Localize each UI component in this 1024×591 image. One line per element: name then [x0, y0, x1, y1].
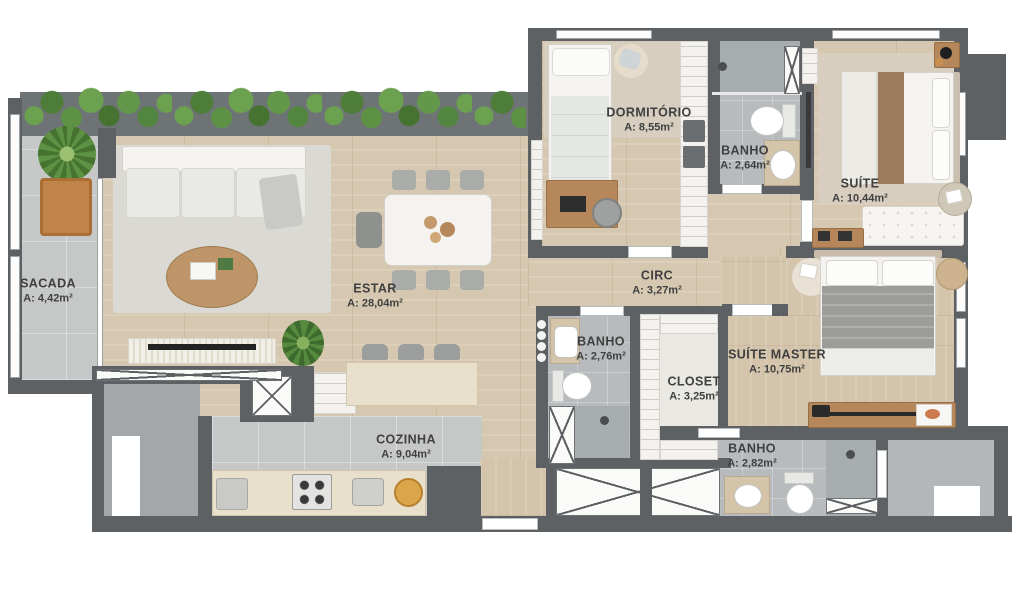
towel-roll — [537, 342, 546, 351]
sliding-door — [97, 178, 103, 382]
shower-glass-panel — [549, 406, 575, 464]
shower-glass-panel — [826, 498, 878, 514]
window — [10, 256, 20, 378]
wall-segment — [528, 246, 628, 258]
wall-segment — [884, 426, 1008, 440]
linen-cabinet — [784, 46, 800, 94]
bath1-door — [722, 184, 762, 194]
label-banho-1: BANHO A: 2,64m² — [720, 143, 770, 172]
balcony-mat — [40, 178, 92, 236]
sofa-cushion — [181, 168, 235, 218]
wall-segment — [994, 436, 1008, 528]
bar-stool — [398, 344, 424, 360]
stove — [292, 474, 332, 510]
toilet-tank — [782, 104, 796, 138]
wall-pillar — [98, 128, 116, 178]
table-bowl — [424, 216, 437, 229]
entry-door — [482, 518, 538, 530]
dining-table — [384, 194, 492, 266]
throw-blanket — [259, 174, 304, 231]
wall-segment — [772, 304, 788, 316]
dining-chair — [460, 270, 484, 290]
toilet-bowl — [750, 106, 784, 136]
pouf — [936, 258, 968, 290]
label-banho-2: BANHO A: 2,76m² — [576, 334, 626, 363]
camera-object — [812, 405, 830, 417]
sink — [770, 150, 796, 180]
bed-pillow — [882, 260, 934, 286]
terrace-door — [877, 450, 887, 498]
bed-sheet-fold — [822, 348, 934, 375]
closet-shelf-left — [640, 314, 660, 460]
service-mat — [112, 436, 140, 516]
floor-plan: SACADA A: 4,42m² ESTAR A: 28,04m² DORMIT… — [0, 0, 1024, 591]
dining-chair — [426, 270, 450, 290]
towel-roll — [537, 353, 546, 362]
dresser-item — [838, 231, 852, 241]
sofa-cushion — [126, 168, 180, 218]
coffee-table-box — [218, 258, 233, 270]
tv-console — [128, 338, 276, 364]
wardrobe — [680, 41, 708, 247]
bar-stool — [362, 344, 388, 360]
label-circ: CIRC A: 3,27m² — [632, 268, 682, 297]
wall-segment — [718, 306, 728, 436]
wall-segment — [546, 458, 556, 518]
kitchen-island — [346, 362, 478, 406]
wardrobe-appliance — [683, 146, 705, 168]
counter-appliance — [216, 478, 248, 510]
plant — [282, 320, 324, 366]
elevator-shaft — [252, 376, 292, 416]
wall-block — [427, 466, 481, 518]
tray-item — [925, 409, 940, 419]
bed-pillow — [826, 260, 878, 286]
window — [10, 114, 20, 250]
planter-plants — [22, 86, 526, 134]
mirror — [806, 92, 811, 168]
kitchen-sink — [352, 478, 384, 506]
label-banho-3: BANHO A: 2,82m² — [727, 441, 777, 470]
bookshelf — [531, 140, 543, 240]
wall-segment — [92, 516, 1012, 532]
table-bowl — [440, 222, 455, 237]
bed-pillow — [932, 130, 950, 180]
window — [956, 318, 966, 368]
towel-shelf — [802, 48, 818, 84]
dining-chair — [426, 170, 450, 190]
wall-segment — [8, 380, 100, 394]
bed-duvet-fold — [842, 72, 878, 184]
coffee-table-book — [190, 262, 216, 280]
bar-stool — [434, 344, 460, 360]
label-suite-master: SUÍTE MASTER A: 10,75m² — [728, 347, 826, 376]
label-estar: ESTAR A: 28,04m² — [347, 281, 403, 310]
wall-segment — [672, 246, 708, 258]
closet-shelf-top — [660, 314, 718, 334]
wall-segment — [630, 306, 640, 466]
bath3-door — [698, 428, 740, 438]
wall-segment — [198, 416, 212, 520]
wall-segment — [640, 426, 888, 440]
bath2-door — [580, 306, 624, 316]
label-sacada: SACADA A: 4,42m² — [20, 276, 76, 305]
bed-pillow — [932, 78, 950, 128]
dining-chair — [392, 170, 416, 190]
lamp-icon — [940, 47, 952, 59]
shower-head-icon — [846, 450, 855, 459]
laptop — [560, 196, 586, 212]
dresser-item — [818, 231, 830, 241]
pizza-dish — [394, 478, 423, 507]
towel-roll — [537, 331, 546, 340]
window — [832, 30, 940, 39]
terrace-mat — [934, 486, 980, 518]
towel-roll — [537, 320, 546, 329]
bed-runner — [874, 72, 904, 184]
label-dormitorio: DORMITÓRIO A: 8,55m² — [606, 105, 691, 134]
wall-segment — [706, 28, 720, 194]
toilet-tank — [784, 472, 814, 484]
shower-head-icon — [718, 62, 727, 71]
paper-on-rug — [799, 263, 818, 280]
shower-head-icon — [600, 416, 609, 425]
low-sideboard — [96, 369, 282, 381]
dining-chair — [460, 170, 484, 190]
label-cozinha: COZINHA A: 9,04m² — [376, 432, 436, 461]
wall-segment — [92, 380, 104, 530]
bed-duvet — [822, 286, 934, 348]
toilet-bowl — [786, 484, 814, 514]
dining-armchair — [356, 212, 382, 248]
sink — [734, 484, 762, 508]
wall-segment — [722, 304, 732, 316]
wall-block — [968, 54, 1006, 140]
desk-chair — [592, 198, 622, 228]
master-door — [732, 304, 774, 316]
closet-shelf-bottom — [660, 440, 718, 460]
tv — [148, 344, 256, 350]
decor-dot — [935, 58, 943, 66]
sink — [554, 326, 578, 358]
bedroom-door — [628, 246, 672, 258]
table-bowl — [430, 232, 441, 243]
storage-cabinet — [556, 468, 720, 516]
balcony-plant — [38, 126, 96, 182]
label-suite: SUÍTE A: 10,44m² — [832, 176, 888, 205]
label-closet: CLOSET A: 3,25m² — [667, 374, 720, 403]
hall-floor — [706, 188, 810, 250]
toilet-bowl — [562, 372, 592, 400]
bed-pillow — [552, 48, 610, 76]
window — [556, 30, 652, 39]
